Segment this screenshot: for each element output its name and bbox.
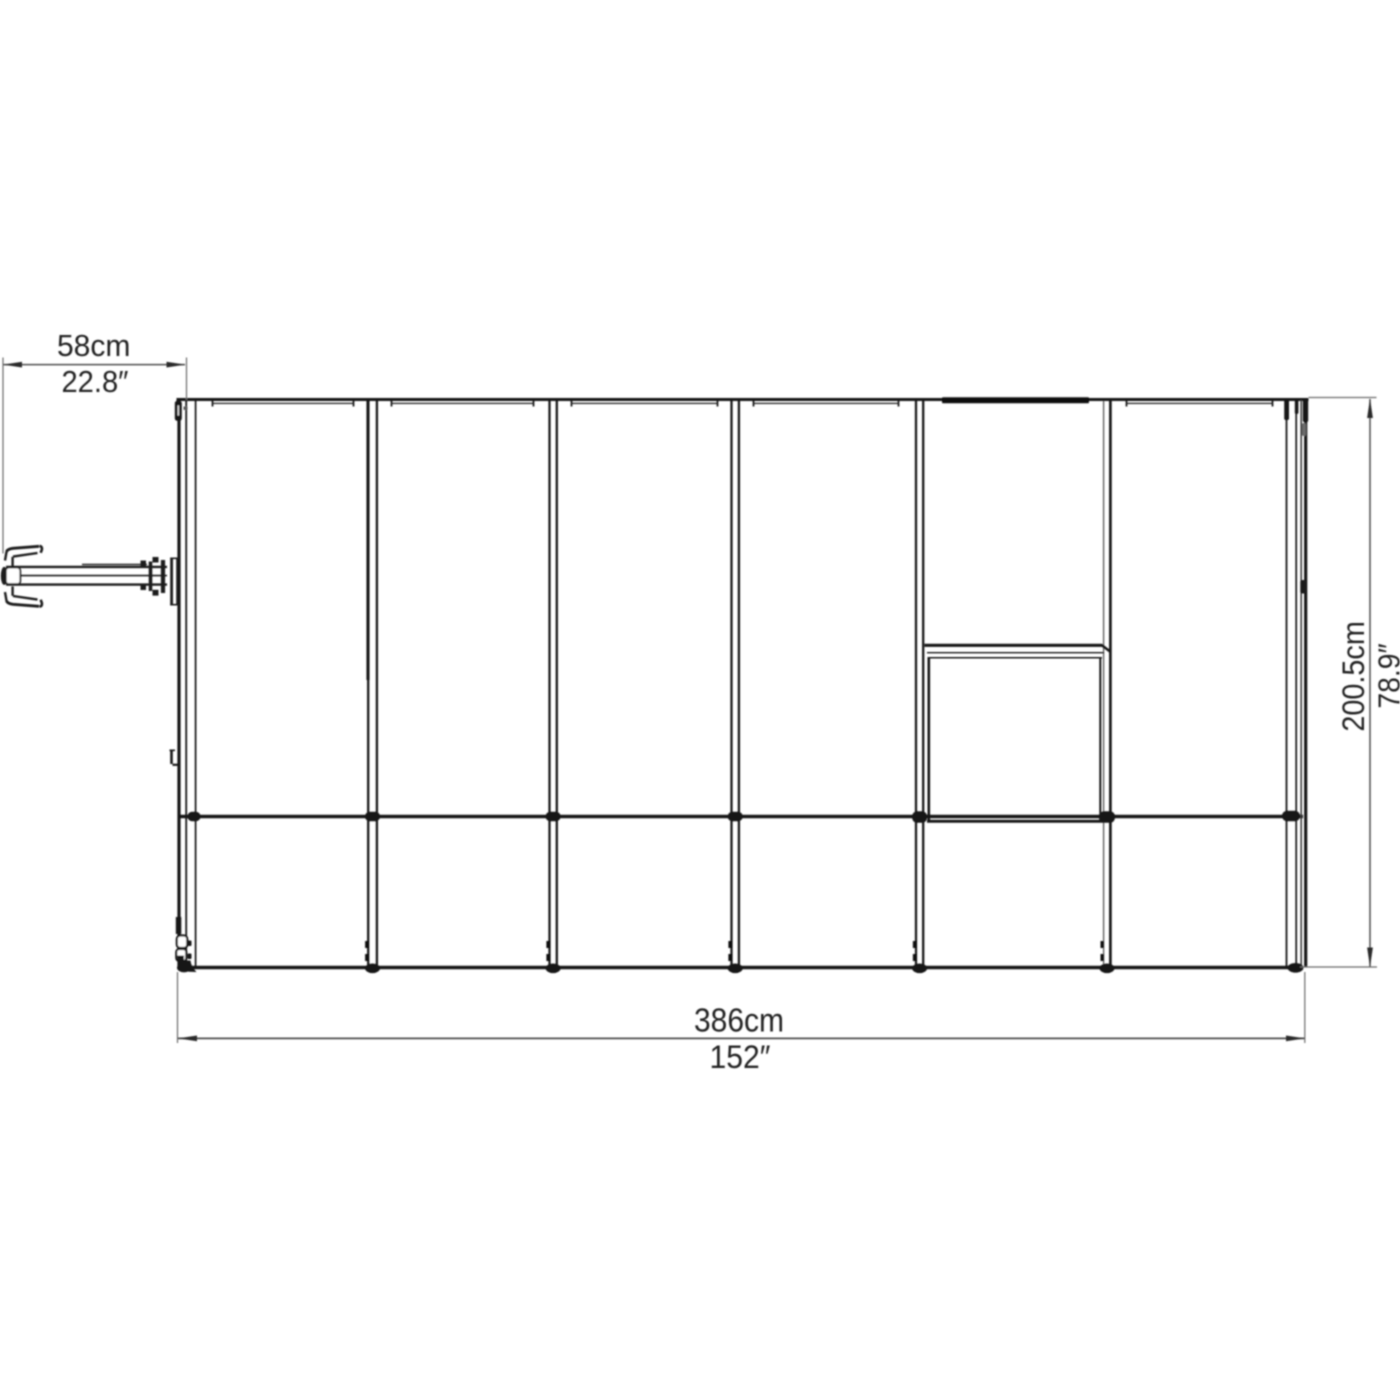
svg-text:22.8″: 22.8″: [61, 365, 128, 399]
svg-text:152″: 152″: [710, 1039, 771, 1075]
svg-text:58cm: 58cm: [57, 328, 130, 363]
svg-text:386cm: 386cm: [694, 1001, 784, 1039]
svg-text:78.9″: 78.9″: [1373, 643, 1400, 708]
svg-text:200.5cm: 200.5cm: [1337, 621, 1371, 731]
